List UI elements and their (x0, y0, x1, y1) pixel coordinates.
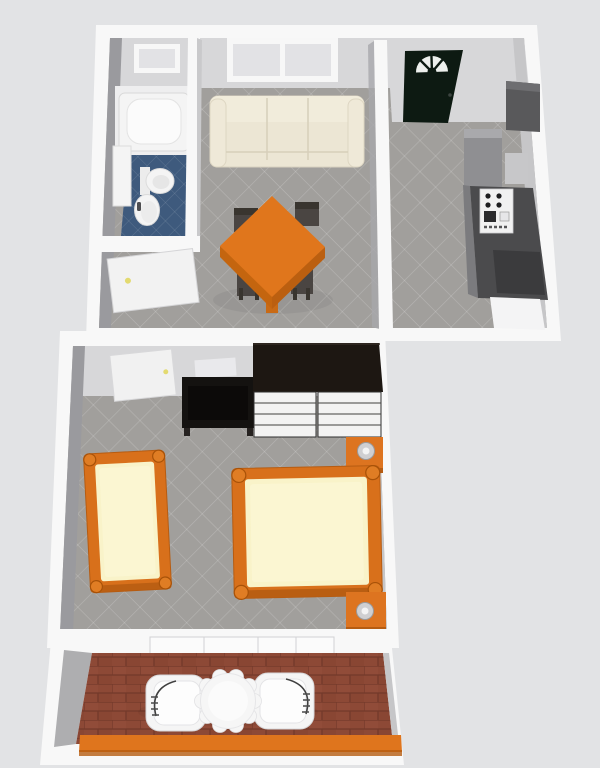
sofa (210, 96, 364, 167)
sofa-back (210, 96, 364, 122)
balcony-rail-shadow (79, 750, 402, 756)
vanity-counter (113, 146, 131, 206)
double-bed (232, 465, 383, 599)
upper-floor-unit (86, 25, 561, 341)
desk (182, 377, 255, 436)
balcony-unit (40, 629, 404, 765)
floor-plan-image (0, 0, 600, 768)
kitchen-low-cabinet (493, 250, 545, 295)
patio-chair-right (254, 673, 314, 729)
dressers (254, 392, 381, 437)
patio-table (195, 670, 262, 733)
bedroom-open-door (110, 349, 176, 401)
sliding-door-frames (150, 637, 334, 654)
bathtub-basin (127, 99, 181, 144)
single-bed (83, 450, 171, 593)
balcony-rail (79, 735, 402, 752)
nightstand-bottom (346, 592, 386, 632)
living-window-pane-left (233, 44, 280, 76)
kitchen-small-box (505, 153, 528, 184)
toilet (140, 167, 174, 195)
sink (135, 195, 160, 226)
open-door-hall (107, 249, 199, 313)
living-window-pane-right (285, 44, 331, 76)
wardrobe (253, 343, 383, 392)
sofa-armrest-right (348, 99, 364, 167)
white-appliance (490, 297, 545, 330)
entry-door-knob (448, 93, 452, 97)
stove (480, 189, 513, 233)
sofa-armrest-left (210, 99, 226, 167)
floor-mat (194, 358, 236, 379)
bedroom-unit (47, 331, 399, 648)
bathroom-window (139, 49, 175, 68)
oven-door (484, 211, 496, 222)
